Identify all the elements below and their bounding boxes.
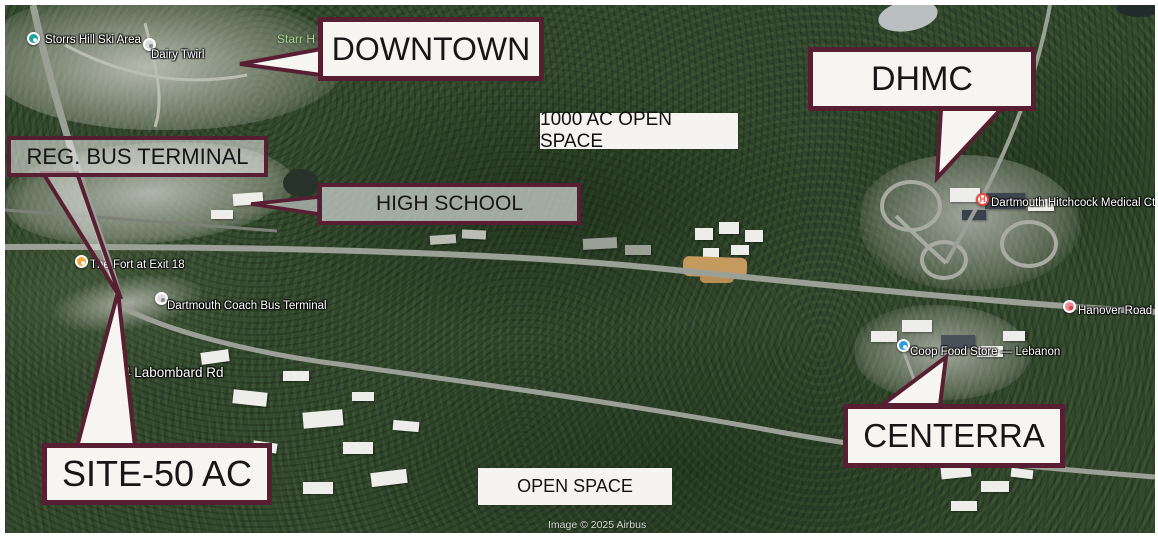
callout-centerra: CENTERRA [843,404,1065,468]
callout-dhmc-label: DHMC [871,60,973,99]
callout-reg-bus-terminal: REG. BUS TERMINAL [7,136,268,177]
callout-centerra-label: CENTERRA [863,417,1045,455]
callout-downtown: DOWNTOWN [318,17,544,81]
satellite-map: Storrs Hill Ski Area Dairy Twirl Starr H… [5,5,1155,533]
callout-downtown-label: DOWNTOWN [332,31,530,68]
slide-canvas: Storrs Hill Ski Area Dairy Twirl Starr H… [0,0,1158,547]
callout-site-50-ac: SITE-50 AC [42,443,272,505]
callout-dhmc: DHMC [808,47,1036,111]
callout-high-school-label: HIGH SCHOOL [376,192,523,216]
callout-high-school: HIGH SCHOOL [318,183,581,225]
callout-reg-bus-terminal-label: REG. BUS TERMINAL [26,144,248,170]
callout-site-50-ac-label: SITE-50 AC [62,453,252,495]
